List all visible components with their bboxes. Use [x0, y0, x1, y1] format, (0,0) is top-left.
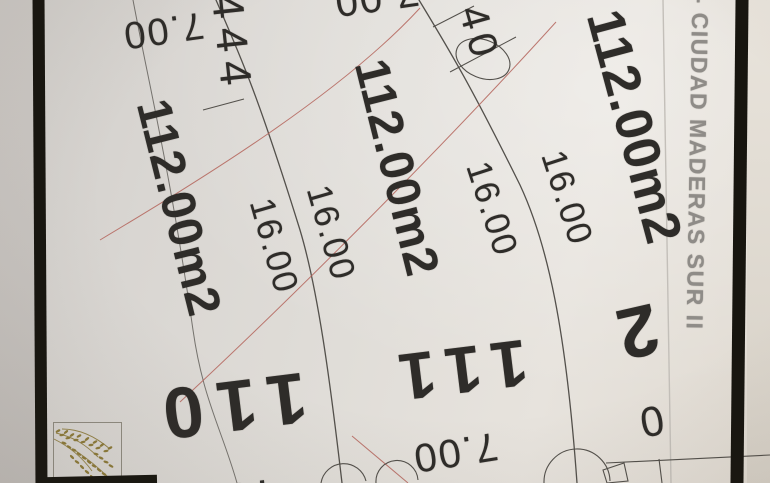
dimension-7-rear-lot111-partial: 7.00: [331, 0, 422, 23]
dimension-16-lot111-right: 16.00: [460, 157, 523, 261]
dimension-0-partial: 0: [637, 398, 667, 443]
plat-photo: 112.00m2 112.00m2 112.00m2 110 111 2 40 …: [0, 0, 770, 483]
dimension-16-lot110: 16.00: [244, 194, 305, 297]
survey-marker-40: 40: [452, 1, 506, 66]
dimension-7-front-lot111: 7.00: [409, 426, 500, 479]
area-label-lot110: 112.00m2: [128, 95, 228, 322]
area-label-lot112: 112.00m2: [578, 5, 690, 250]
sheet-side-title: - CIUDAD MADERAS SUR II: [683, 0, 712, 331]
dimension-7-front-lot110-partial: 7.00: [174, 471, 276, 483]
dimension-7-rear-lot110: 7.00: [120, 5, 206, 54]
lot-number-111: 111: [383, 330, 532, 413]
sheet-frame-bottom-corner: [42, 475, 157, 483]
adjacent-lot-number-444: 444: [204, 0, 258, 96]
dimension-16-lot112: 16.00: [535, 146, 598, 250]
plan-labels: 112.00m2 112.00m2 112.00m2 110 111 2 40 …: [0, 0, 770, 483]
lot-number-110: 110: [145, 361, 311, 452]
lot-number-112-partial: 2: [610, 291, 665, 370]
area-label-lot111: 112.00m2: [346, 55, 446, 282]
dimension-16-lot111-left: 16.00: [301, 181, 362, 284]
